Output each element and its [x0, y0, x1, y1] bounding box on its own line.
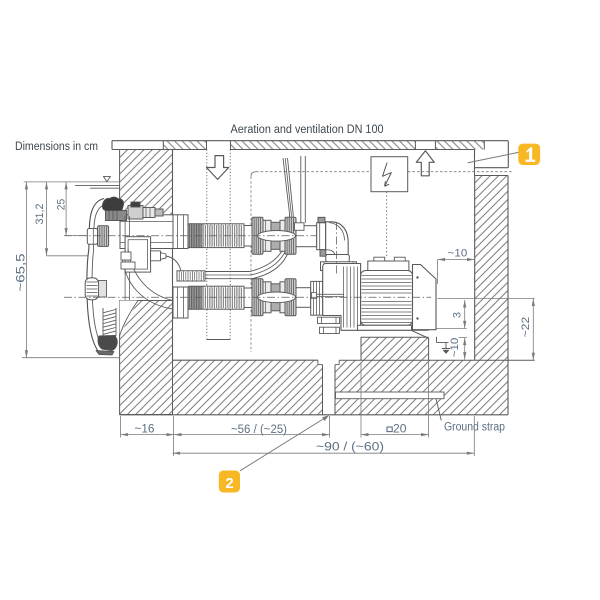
svg-text:20: 20 [393, 423, 407, 435]
svg-text:Dimensions in cm: Dimensions in cm [15, 141, 98, 153]
svg-text:~10: ~10 [449, 338, 461, 358]
svg-text:31,2: 31,2 [34, 204, 46, 225]
svg-text:25: 25 [55, 199, 67, 211]
svg-text:~65,5: ~65,5 [16, 254, 28, 292]
svg-text:~16: ~16 [135, 424, 155, 436]
svg-text:3: 3 [452, 312, 464, 318]
svg-text:~90 / (~60): ~90 / (~60) [316, 441, 384, 453]
svg-text:~10: ~10 [448, 248, 468, 260]
svg-text:~56 / (~25): ~56 / (~25) [231, 424, 287, 436]
svg-text:~22: ~22 [520, 317, 532, 338]
svg-text:Aeration and ventilation DN 10: Aeration and ventilation DN 100 [231, 124, 384, 136]
svg-text:2: 2 [225, 475, 233, 492]
